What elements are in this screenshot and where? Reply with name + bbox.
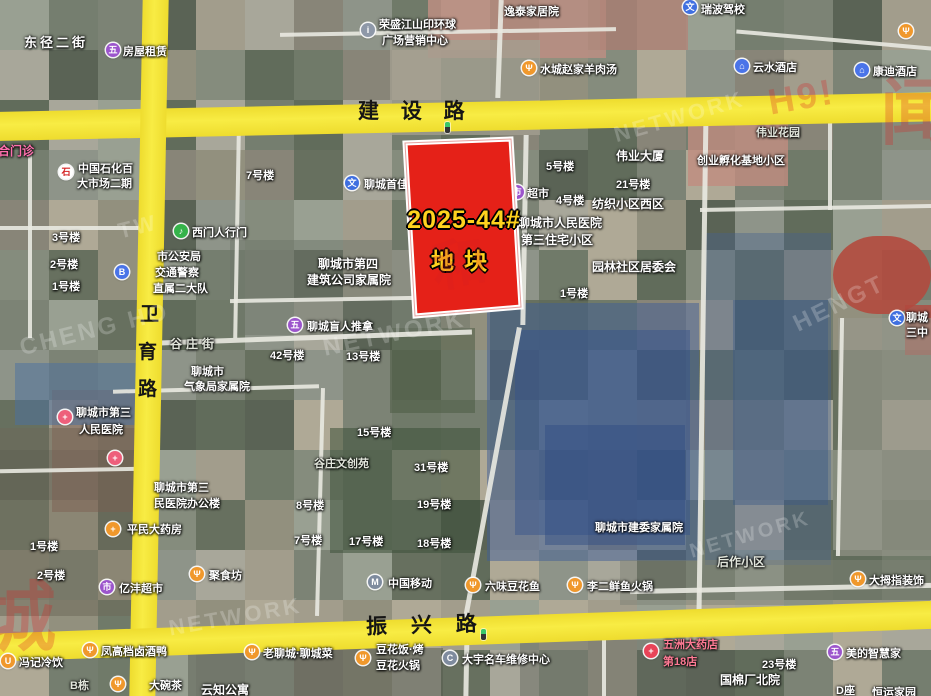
food-icon[interactable]: Ψ xyxy=(83,643,97,657)
map-tile xyxy=(294,0,344,52)
map-label: 伟业大厦 xyxy=(616,147,664,164)
map-label: 13号楼 xyxy=(346,348,380,364)
poi-label: 聊城 xyxy=(906,309,928,325)
minor-road xyxy=(28,148,32,338)
map-label: 2号楼 xyxy=(37,567,65,583)
map-tile xyxy=(245,0,295,52)
map-label: 1号楼 xyxy=(30,538,58,554)
map-label: 交通警察 xyxy=(155,264,199,280)
map-tile xyxy=(245,450,295,502)
poi-label: 大市场二期 xyxy=(77,175,132,191)
parcel-type-label: 地块 xyxy=(398,242,530,276)
map-label: 42号楼 xyxy=(270,347,304,363)
map-label: 直属二大队 xyxy=(153,280,208,296)
map-label: 21号楼 xyxy=(616,176,650,192)
parcel-code-label: 2025-44# xyxy=(398,206,530,235)
map-tile xyxy=(882,150,931,202)
map-label: 1号楼 xyxy=(560,285,588,301)
poi-label: 三中 xyxy=(906,324,928,340)
trees-patch xyxy=(390,328,475,413)
food-icon[interactable]: Ψ xyxy=(851,572,865,586)
map-tile xyxy=(0,300,50,352)
map-tile xyxy=(0,50,50,102)
terrain-patch xyxy=(838,318,931,556)
traffic-light-icon xyxy=(481,629,486,640)
hotel-icon[interactable]: ⌂ xyxy=(735,59,749,73)
map-label: B栋 xyxy=(70,677,89,693)
poi-label: 李二鲜鱼火锅 xyxy=(587,578,653,594)
map-label: 东径二街 xyxy=(24,32,88,51)
poi-label: 豆花火锅 xyxy=(376,657,420,673)
map-label: 市公安局 xyxy=(157,248,201,264)
drink-icon[interactable]: U xyxy=(1,654,15,668)
pill-icon[interactable]: + xyxy=(644,644,658,658)
map-tile xyxy=(196,50,246,102)
map-tile xyxy=(294,50,344,102)
map-label: 谷庄文创苑 xyxy=(314,455,369,471)
poi-label: 大拇指装饰 xyxy=(869,572,924,588)
marker-icon[interactable]: 五 xyxy=(106,43,120,57)
map-tile xyxy=(49,300,99,352)
map-tile xyxy=(441,550,491,602)
poi-label: 云水酒店 xyxy=(753,59,797,75)
map-label: 7号楼 xyxy=(294,532,322,548)
map-tile xyxy=(784,0,834,52)
satellite-map[interactable]: 建 设 路 振 兴 路 卫 育 路 五房屋租赁i荣盛江山印环球广场营销中心Ψ水城… xyxy=(0,0,931,696)
map-label: 3号楼 xyxy=(52,229,80,245)
food-icon[interactable]: Ψ xyxy=(111,677,125,691)
map-label: D座 xyxy=(836,682,855,696)
map-label: 民医院办公楼 xyxy=(154,495,220,511)
food-icon[interactable]: Ψ xyxy=(522,61,536,75)
poi-label: 美的智慧家 xyxy=(846,645,901,661)
map-label: 联合门诊 xyxy=(0,142,34,159)
poi-label: 荣盛江山印环球 xyxy=(379,16,456,32)
map-tile xyxy=(343,550,393,602)
map-tile xyxy=(735,50,785,102)
poi-label: 平民大药房 xyxy=(127,521,182,537)
food-icon[interactable]: Ψ xyxy=(356,651,370,665)
map-tile xyxy=(196,0,246,52)
map-label: 1号楼 xyxy=(52,278,80,294)
map-label: 气象局家属院 xyxy=(184,378,250,394)
map-label: 聊城市 xyxy=(191,363,224,379)
road-label-weiyu-char3: 路 xyxy=(138,374,157,401)
road-label-weiyu-char2: 育 xyxy=(138,337,157,364)
map-label: 7号楼 xyxy=(246,167,274,183)
map-label: 19号楼 xyxy=(417,496,451,512)
map-tile xyxy=(245,550,295,602)
poi-label: 人民医院 xyxy=(79,421,123,437)
map-tile xyxy=(784,150,834,202)
poi-label: 老聊城·聊城菜 xyxy=(263,645,333,661)
map-label: 5号楼 xyxy=(546,158,574,174)
mobile-icon[interactable]: M xyxy=(368,575,382,589)
map-tile xyxy=(686,50,736,102)
food-icon[interactable]: Ψ xyxy=(190,567,204,581)
poi-label: 水城赵家羊肉汤 xyxy=(540,61,617,77)
poi-label: 大碗茶 xyxy=(149,677,182,693)
map-label: 国棉厂北院 xyxy=(720,671,780,688)
map-label: 聊城市建委家属院 xyxy=(595,519,683,535)
poi-label: 中国石化百 xyxy=(78,160,133,176)
map-label: 伟业花园 xyxy=(756,124,800,140)
car-icon[interactable]: C xyxy=(443,651,457,665)
pharm-icon[interactable]: + xyxy=(106,522,120,536)
poi-label: 广场营销中心 xyxy=(382,32,448,48)
food-icon[interactable]: Ψ xyxy=(899,24,913,38)
map-label: 18号楼 xyxy=(417,535,451,551)
food-icon[interactable]: Ψ xyxy=(568,578,582,592)
map-tile xyxy=(196,400,246,452)
poi-label: 亿沣超市 xyxy=(119,580,163,596)
map-tile xyxy=(833,150,883,202)
map-label: 31号楼 xyxy=(414,459,448,475)
map-tile xyxy=(0,250,50,302)
map-label: 园林社区居委会 xyxy=(592,258,676,275)
poi-label: 聊城市第三 xyxy=(76,404,131,420)
map-label: 纺织小区西区 xyxy=(592,195,664,212)
poi-label: 大宇名车维修中心 xyxy=(462,651,550,667)
map-label: 17号楼 xyxy=(349,533,383,549)
gate-icon[interactable]: ♪ xyxy=(174,224,188,238)
map-tile xyxy=(49,50,99,102)
hotel-icon[interactable]: ⌂ xyxy=(855,63,869,77)
poi-label: 五洲大药店 xyxy=(663,636,718,652)
poi-label: 凤高档卤酒鸭 xyxy=(101,643,167,659)
map-label: 建筑公司家属院 xyxy=(307,271,391,288)
sinopec-icon[interactable]: 石 xyxy=(59,165,73,179)
map-label: 15号楼 xyxy=(357,424,391,440)
road-label-zhenxing: 振 兴 路 xyxy=(366,607,486,640)
poi-label: 瑞波驾校 xyxy=(701,1,745,17)
poi-label: 豆花饭·烤 xyxy=(376,641,424,657)
map-label: 逸泰家居院 xyxy=(504,3,559,19)
map-label: 恒运家园 xyxy=(872,684,916,696)
blue-tarp-area xyxy=(733,300,828,505)
school-icon[interactable]: 文 xyxy=(345,176,359,190)
info-icon[interactable]: i xyxy=(361,23,375,37)
stadium-track xyxy=(833,236,931,314)
map-label: 谷庄街 xyxy=(170,335,218,352)
minor-road xyxy=(828,112,832,210)
map-label: 2号楼 xyxy=(50,256,78,272)
poi-label: 中国移动 xyxy=(388,575,432,591)
road-label-weiyu-char1: 卫 xyxy=(140,299,159,326)
map-label: 云知公寓 xyxy=(201,681,249,696)
food-icon[interactable]: Ψ xyxy=(245,645,259,659)
poi-label: 第18店 xyxy=(663,653,697,669)
poi-label: 聊城盲人推拿 xyxy=(307,318,373,334)
map-label: 8号楼 xyxy=(296,497,324,513)
map-tile xyxy=(637,50,687,102)
marker-icon[interactable]: 五 xyxy=(828,645,842,659)
cross-icon[interactable]: + xyxy=(108,451,122,465)
terrain-patch xyxy=(600,0,688,50)
map-tile xyxy=(245,500,295,552)
map-tile xyxy=(245,400,295,452)
marker-icon[interactable]: 五 xyxy=(288,318,302,332)
map-label: 聊城市第三 xyxy=(154,479,209,495)
map-label: 4号楼 xyxy=(556,192,584,208)
school-icon[interactable]: 文 xyxy=(683,0,697,14)
map-label: 23号楼 xyxy=(762,656,796,672)
map-tile xyxy=(245,50,295,102)
map-tile xyxy=(294,150,344,202)
poi-label: 康迪酒店 xyxy=(873,63,917,79)
bus-icon[interactable]: B xyxy=(115,265,129,279)
cart-icon[interactable]: 市 xyxy=(100,580,114,594)
map-label: 创业孵化基地小区 xyxy=(697,152,785,168)
map-label: 后作小区 xyxy=(717,553,765,570)
road-label-jianshe: 建 设 路 xyxy=(358,95,473,125)
poi-label: 房屋租赁 xyxy=(123,43,167,59)
school-icon[interactable]: 文 xyxy=(890,311,904,325)
cross-icon[interactable]: + xyxy=(58,410,72,424)
poi-label: 聚食坊 xyxy=(209,567,242,583)
poi-label: 冯记冷饮 xyxy=(19,654,63,670)
food-icon[interactable]: Ψ xyxy=(466,578,480,592)
poi-label: 六味豆花鱼 xyxy=(485,578,540,594)
map-label: 聊城市第四 xyxy=(318,255,378,272)
poi-label: 西门人行门 xyxy=(192,224,247,240)
